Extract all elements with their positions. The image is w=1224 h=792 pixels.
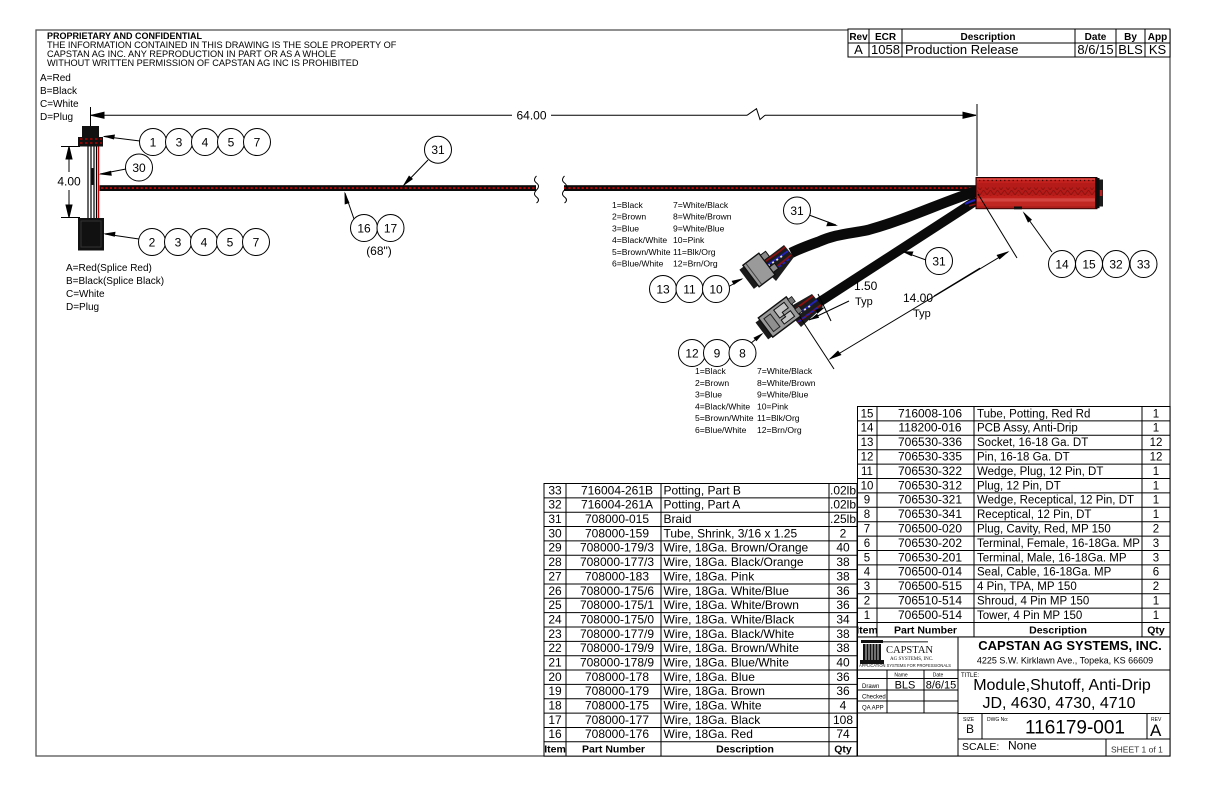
svg-text:8/6/15: 8/6/15 [926,680,957,692]
svg-text:23: 23 [548,627,562,641]
svg-text:5: 5 [227,235,234,249]
svg-text:34: 34 [836,612,850,626]
svg-text:38: 38 [836,627,850,641]
svg-text:11=Blk/Org: 11=Blk/Org [673,247,716,257]
svg-text:6=Blue/White: 6=Blue/White [695,425,747,435]
svg-text:9: 9 [864,495,870,507]
svg-text:2: 2 [1153,524,1159,536]
svg-text:8=White/Brown: 8=White/Brown [757,378,816,388]
svg-text:B=Black: B=Black [40,86,78,97]
svg-text:Receptical, 12 Pin, DT: Receptical, 12 Pin, DT [977,509,1091,521]
svg-text:D=Plug: D=Plug [66,302,99,313]
svg-text:64.00: 64.00 [516,108,546,122]
svg-text:706500-020: 706500-020 [898,522,962,536]
svg-text:31: 31 [790,204,804,218]
svg-text:Description: Description [716,744,774,756]
svg-text:74: 74 [836,727,850,741]
svg-text:40: 40 [836,656,850,670]
svg-text:31: 31 [932,254,946,268]
svg-text:Tube, Shrink, 3/16 x 1.25: Tube, Shrink, 3/16 x 1.25 [664,526,798,540]
svg-text:C=White: C=White [66,289,105,300]
svg-text:24: 24 [548,612,562,626]
svg-text:708000-178: 708000-178 [585,670,649,684]
svg-text:1: 1 [864,610,870,622]
svg-text:708000-159: 708000-159 [585,526,649,540]
svg-text:PCB Assy, Anti-Drip: PCB Assy, Anti-Drip [977,423,1078,435]
svg-text:36: 36 [836,684,850,698]
svg-text:29: 29 [548,541,562,555]
svg-text:32: 32 [548,498,562,512]
svg-text:706500-514: 706500-514 [898,608,962,622]
svg-text:708000-015: 708000-015 [585,512,649,526]
svg-text:None: None [1008,739,1037,753]
svg-text:706530-321: 706530-321 [898,493,962,507]
svg-text:21: 21 [548,656,562,670]
svg-text:3: 3 [176,135,183,149]
svg-text:12: 12 [1150,437,1163,449]
svg-text:33: 33 [548,483,562,497]
svg-text:30: 30 [132,161,146,175]
svg-text:Terminal, Female, 16-18Ga. MP: Terminal, Female, 16-18Ga. MP [977,538,1140,550]
svg-text:3: 3 [864,581,870,593]
svg-text:706500-014: 706500-014 [898,565,962,579]
svg-text:1: 1 [1153,596,1159,608]
svg-text:31: 31 [548,512,562,526]
svg-text:11: 11 [683,282,696,296]
svg-text:.02lb: .02lb [830,498,856,512]
svg-text:Name: Name [894,673,908,679]
svg-text:40: 40 [836,541,850,555]
svg-text:3: 3 [1153,538,1159,550]
svg-text:36: 36 [836,584,850,598]
svg-text:5=Brown/White: 5=Brown/White [695,413,754,423]
svg-text:8: 8 [864,509,870,521]
svg-text:A: A [1150,721,1162,740]
svg-text:1.50: 1.50 [854,279,878,293]
svg-text:716008-106: 716008-106 [898,406,962,420]
svg-text:4: 4 [201,235,208,249]
svg-text:1: 1 [1153,408,1159,420]
svg-text:708000-179: 708000-179 [585,684,649,698]
svg-text:17: 17 [384,221,398,235]
svg-text:(68"): (68") [366,244,392,258]
svg-text:SCALE:: SCALE: [962,741,999,753]
svg-text:DWG No:: DWG No: [987,717,1008,723]
svg-text:708000-177/9: 708000-177/9 [580,627,654,641]
svg-text:706530-202: 706530-202 [898,536,962,550]
svg-text:Wire, 18Ga. White/Black: Wire, 18Ga. White/Black [664,612,796,626]
svg-text:CAPSTAN: CAPSTAN [886,645,933,656]
svg-text:708000-179/3: 708000-179/3 [580,541,654,555]
svg-text:1: 1 [1153,495,1159,507]
svg-text:11=Blk/Org: 11=Blk/Org [757,413,800,423]
svg-text:38: 38 [836,641,850,655]
svg-text:Wedge, Plug, 12 Pin, DT: Wedge, Plug, 12 Pin, DT [977,466,1103,478]
svg-text:13: 13 [861,437,874,449]
svg-text:Date: Date [933,673,944,679]
svg-text:30: 30 [548,526,562,540]
svg-text:Production Release: Production Release [905,42,1018,57]
svg-text:Braid: Braid [664,512,692,526]
svg-text:A=Red: A=Red [40,73,71,84]
svg-text:3: 3 [175,235,182,249]
svg-text:36: 36 [836,670,850,684]
svg-text:32: 32 [1109,257,1123,271]
svg-text:1=Black: 1=Black [612,200,644,210]
svg-text:708000-175/0: 708000-175/0 [580,612,654,626]
svg-text:.25lb: .25lb [830,512,856,526]
svg-text:B=Black(Splice Black): B=Black(Splice Black) [66,276,164,287]
svg-text:15: 15 [861,408,874,420]
svg-text:Qty: Qty [1147,624,1165,636]
svg-text:2: 2 [149,235,156,249]
svg-text:27: 27 [548,569,562,583]
svg-text:4: 4 [840,699,847,713]
svg-text:Pin, 16-18 Ga. DT: Pin, 16-18 Ga. DT [977,452,1070,464]
svg-text:AG SYSTEMS, INC.: AG SYSTEMS, INC. [890,657,933,662]
svg-text:36: 36 [836,598,850,612]
svg-text:38: 38 [836,555,850,569]
svg-text:14.00: 14.00 [903,291,933,305]
svg-text:108: 108 [833,713,853,727]
svg-text:Wire, 18Ga. Blue: Wire, 18Ga. Blue [664,670,756,684]
svg-text:Part Number: Part Number [582,744,645,756]
svg-text:10: 10 [709,282,723,296]
svg-text:10=Pink: 10=Pink [673,235,705,245]
svg-text:4: 4 [202,135,209,149]
svg-text:1058: 1058 [871,42,900,57]
svg-text:16: 16 [548,727,562,741]
svg-text:12: 12 [861,452,874,464]
svg-text:KS: KS [1149,42,1167,57]
svg-text:708000-177/3: 708000-177/3 [580,555,654,569]
svg-text:3=Blue: 3=Blue [695,390,722,400]
svg-text:2: 2 [1153,581,1159,593]
svg-text:2: 2 [864,596,870,608]
svg-text:APPLICATION SYSTEMS FOR PROFES: APPLICATION SYSTEMS FOR PROFESSIONALS [859,663,951,669]
svg-text:Wire, 18Ga. Pink: Wire, 18Ga. Pink [664,569,756,583]
svg-text:2=Brown: 2=Brown [612,212,646,222]
svg-text:Potting, Part A: Potting, Part A [664,498,741,512]
svg-text:2=Brown: 2=Brown [695,378,729,388]
svg-text:7: 7 [864,524,870,536]
svg-text:5: 5 [228,135,235,149]
svg-text:Typ: Typ [913,308,931,320]
svg-text:4.00: 4.00 [57,175,81,189]
svg-text:708000-179/9: 708000-179/9 [580,641,654,655]
svg-text:Item: Item [544,744,566,756]
svg-text:12: 12 [685,346,699,360]
svg-text:7=White/Black: 7=White/Black [673,200,729,210]
svg-text:Checked: Checked [862,695,886,701]
svg-text:708000-183: 708000-183 [585,569,649,583]
svg-text:SHEET 1 of 1: SHEET 1 of 1 [1111,745,1163,755]
svg-text:Part Number: Part Number [894,624,957,636]
svg-text:116179-001: 116179-001 [1025,718,1125,739]
svg-text:14: 14 [861,423,874,435]
svg-text:6=Blue/White: 6=Blue/White [612,259,664,269]
svg-text:CAPSTAN AG SYSTEMS, INC.: CAPSTAN AG SYSTEMS, INC. [978,638,1161,653]
svg-text:4=Black/White: 4=Black/White [612,235,667,245]
svg-text:17: 17 [548,713,562,727]
svg-text:31: 31 [431,143,445,157]
svg-text:708000-175/1: 708000-175/1 [580,598,654,612]
svg-text:33: 33 [1137,257,1151,271]
svg-text:708000-178/9: 708000-178/9 [580,656,654,670]
svg-text:Qty: Qty [834,744,852,756]
svg-text:Plug, 12 Pin, DT: Plug, 12 Pin, DT [977,480,1061,492]
svg-text:A=Red(Splice Red): A=Red(Splice Red) [66,263,152,274]
svg-text:Plug, Cavity, Red, MP 150: Plug, Cavity, Red, MP 150 [977,524,1111,536]
svg-text:QA APP: QA APP [862,706,884,712]
svg-text:13: 13 [656,282,670,296]
svg-text:706530-336: 706530-336 [898,435,962,449]
svg-text:708000-176: 708000-176 [585,727,649,741]
svg-text:8/6/15: 8/6/15 [1077,42,1113,57]
svg-text:706510-514: 706510-514 [898,594,962,608]
svg-text:14: 14 [1055,257,1069,271]
svg-text:3: 3 [1153,552,1159,564]
svg-text:JD, 4630, 4730, 4710: JD, 4630, 4730, 4710 [982,695,1135,712]
svg-text:708000-175: 708000-175 [585,699,649,713]
svg-text:706530-341: 706530-341 [898,507,962,521]
svg-text:706530-201: 706530-201 [898,550,962,564]
svg-text:7=White/Black: 7=White/Black [757,366,813,376]
svg-text:1=Black: 1=Black [695,366,727,376]
svg-text:12: 12 [1150,452,1163,464]
svg-text:2: 2 [840,526,847,540]
svg-text:Wire, 18Ga. Black: Wire, 18Ga. Black [664,713,762,727]
svg-text:1: 1 [1153,509,1159,521]
svg-text:Wire, 18Ga. White/Brown: Wire, 18Ga. White/Brown [664,598,799,612]
svg-text:15: 15 [1082,257,1096,271]
svg-text:9=White/Blue: 9=White/Blue [757,390,809,400]
svg-text:7: 7 [253,235,260,249]
svg-text:4225 S.W. Kirklawn Ave., Topek: 4225 S.W. Kirklawn Ave., Topeka, KS 6660… [977,656,1153,666]
svg-text:Tower, 4 Pin MP 150: Tower, 4 Pin MP 150 [977,610,1082,622]
svg-text:1: 1 [150,135,157,149]
svg-text:Wire, 18Ga. Brown: Wire, 18Ga. Brown [664,684,765,698]
svg-text:4=Black/White: 4=Black/White [695,401,750,411]
svg-text:19: 19 [548,684,562,698]
svg-text:C=White: C=White [40,99,79,110]
svg-text:.02lb: .02lb [830,483,856,497]
svg-text:Seal, Cable, 16-18Ga. MP: Seal, Cable, 16-18Ga. MP [977,567,1112,579]
svg-text:6: 6 [864,538,870,550]
svg-text:8=White/Brown: 8=White/Brown [673,212,732,222]
svg-text:WITHOUT WRITTEN PERMISSION OF: WITHOUT WRITTEN PERMISSION OF CAPSTAN AG… [47,58,359,68]
svg-text:1: 1 [1153,480,1159,492]
svg-text:A: A [854,42,863,57]
svg-text:22: 22 [548,641,562,655]
svg-text:Wire, 18Ga. Brown/White: Wire, 18Ga. Brown/White [664,641,800,655]
svg-text:1: 1 [1153,610,1159,622]
svg-text:Wire, 18Ga. Black/Orange: Wire, 18Ga. Black/Orange [664,555,804,569]
svg-text:706530-322: 706530-322 [898,464,962,478]
svg-text:D=Plug: D=Plug [40,112,73,123]
svg-text:Description: Description [1029,624,1087,636]
svg-text:25: 25 [548,598,562,612]
svg-text:716004-261A: 716004-261A [581,498,653,512]
svg-text:12=Brn/Org: 12=Brn/Org [673,259,718,269]
svg-text:Wire, 18Ga. Brown/Orange: Wire, 18Ga. Brown/Orange [664,541,809,555]
svg-text:716004-261B: 716004-261B [581,483,653,497]
svg-text:B: B [966,722,974,736]
svg-text:26: 26 [548,584,562,598]
svg-text:11: 11 [861,466,873,478]
svg-text:Drawn: Drawn [862,684,879,690]
svg-text:BLS: BLS [895,680,916,692]
svg-text:3=Blue: 3=Blue [612,223,639,233]
svg-text:708000-175/6: 708000-175/6 [580,584,654,598]
svg-text:Wire, 18Ga. Blue/White: Wire, 18Ga. Blue/White [664,656,790,670]
svg-text:Wire, 18Ga. White: Wire, 18Ga. White [664,699,762,713]
svg-text:Item: Item [856,624,878,636]
svg-text:Module,Shutoff, Anti-Drip: Module,Shutoff, Anti-Drip [973,677,1151,694]
svg-text:706500-515: 706500-515 [898,579,962,593]
svg-text:706530-335: 706530-335 [898,450,962,464]
svg-text:8: 8 [739,346,746,360]
svg-text:1: 1 [1153,466,1159,478]
svg-text:6: 6 [1153,567,1159,579]
svg-text:Socket, 16-18 Ga. DT: Socket, 16-18 Ga. DT [977,437,1088,449]
svg-text:Terminal, Male, 16-18Ga. MP: Terminal, Male, 16-18Ga. MP [977,552,1127,564]
svg-text:16: 16 [357,221,371,235]
svg-text:Wire, 18Ga. White/Blue: Wire, 18Ga. White/Blue [664,584,790,598]
svg-text:10=Pink: 10=Pink [757,401,789,411]
svg-text:Typ: Typ [855,296,873,308]
svg-text:Wedge, Receptical, 12 Pin, DT: Wedge, Receptical, 12 Pin, DT [977,495,1134,507]
svg-text:5: 5 [864,552,870,564]
svg-text:20: 20 [548,670,562,684]
svg-text:Wire, 18Ga. Red: Wire, 18Ga. Red [664,727,753,741]
svg-text:9=White/Blue: 9=White/Blue [673,223,725,233]
svg-text:4: 4 [864,567,871,579]
svg-text:38: 38 [836,569,850,583]
svg-text:Potting, Part B: Potting, Part B [664,483,741,497]
svg-text:708000-177: 708000-177 [585,713,649,727]
svg-text:1: 1 [1153,423,1159,435]
svg-text:12=Brn/Org: 12=Brn/Org [757,425,802,435]
svg-text:706530-312: 706530-312 [898,478,962,492]
svg-text:4 Pin, TPA, MP 150: 4 Pin, TPA, MP 150 [977,581,1077,593]
svg-text:28: 28 [548,555,562,569]
svg-text:Shroud, 4 Pin MP 150: Shroud, 4 Pin MP 150 [977,596,1089,608]
svg-text:9: 9 [714,346,721,360]
svg-text:BLS: BLS [1118,42,1143,57]
svg-text:Tube, Potting, Red Rd: Tube, Potting, Red Rd [977,408,1090,420]
svg-text:Wire, 18Ga. Black/White: Wire, 18Ga. Black/White [664,627,795,641]
svg-text:18: 18 [548,699,562,713]
svg-text:5=Brown/White: 5=Brown/White [612,247,671,257]
svg-text:7: 7 [254,135,261,149]
svg-text:118200-016: 118200-016 [898,421,961,435]
svg-text:10: 10 [861,480,874,492]
